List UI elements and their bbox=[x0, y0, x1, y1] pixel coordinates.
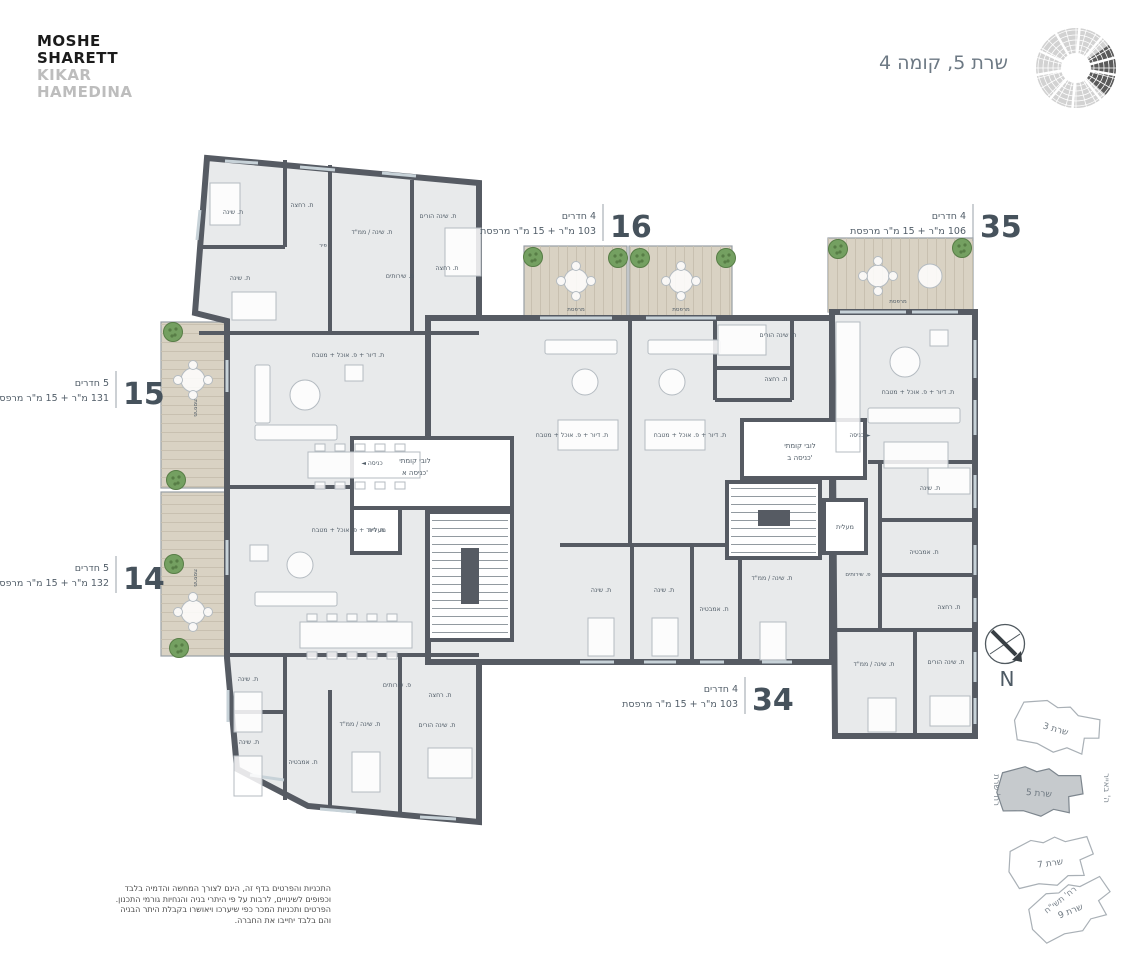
disclaimer-text: התכניות והפרטים בדף זה, הינם לצורך המחשה… bbox=[35, 884, 331, 926]
room-label: ת. שינה הורים bbox=[760, 332, 797, 339]
room-label: ת. אמבטיה bbox=[288, 759, 317, 766]
tree-icon bbox=[164, 323, 183, 342]
keyplan-building-שרת 5[interactable]: שרת 5 bbox=[995, 764, 1085, 819]
room-label: מרפסת bbox=[192, 399, 198, 417]
apartment-number: 34 bbox=[752, 683, 794, 718]
apartment-label-14[interactable]: 145 חדרים132 מ"ר + 15 מ"ר מרפסת bbox=[0, 556, 165, 597]
apartment-number: 14 bbox=[123, 562, 165, 597]
room-label: ת. רחצה bbox=[290, 202, 313, 209]
apartment-area: 103 מ"ר + 15 מ"ר מרפסת bbox=[480, 226, 596, 237]
room-label: כניסה א' bbox=[402, 469, 428, 477]
room-label: ת. שינה הורים bbox=[419, 722, 456, 729]
apartment-rooms: 4 חדרים bbox=[932, 211, 966, 222]
apartment-number: 35 bbox=[980, 210, 1022, 245]
tree-icon bbox=[170, 639, 189, 658]
tree-icon bbox=[167, 471, 186, 490]
north-label: N bbox=[1000, 667, 1015, 691]
room-label: ת. רחצה bbox=[435, 265, 458, 272]
room-label: ת. שינה bbox=[238, 676, 258, 683]
room-label: כניסה ► bbox=[849, 432, 871, 439]
compass: N bbox=[986, 625, 1025, 692]
apartment-area: 103 מ"ר + 15 מ"ר מרפסת bbox=[622, 699, 738, 710]
room-label: ת. אמבטיה bbox=[699, 606, 728, 613]
apartment-area: 106 מ"ר + 15 מ"ר מרפסת bbox=[850, 226, 966, 237]
room-label: כניסה ב' bbox=[787, 454, 812, 462]
street-label: ה' באייר bbox=[1101, 773, 1111, 803]
room-label: מרפסת bbox=[567, 307, 585, 313]
tree-icon bbox=[165, 555, 184, 574]
floorplan-page: MOSHE SHARETT KIKAR HAMEDINA שרת 5, קומה… bbox=[0, 0, 1148, 956]
room-label: ת. שינה bbox=[230, 275, 250, 282]
keyplan-building-שרת 7[interactable]: שרת 7 bbox=[1005, 832, 1097, 892]
room-label: לובי קומתי bbox=[399, 457, 431, 465]
room-label: מעלית bbox=[836, 523, 854, 531]
room-label: מרפסת bbox=[192, 569, 198, 587]
room-label: פ. שירותים bbox=[383, 682, 411, 689]
street-label: רח' שרת bbox=[991, 774, 1001, 806]
room-label: ת. דיור + פ. אוכל + מטבח bbox=[312, 352, 384, 359]
room-label: ת. רחצה bbox=[937, 604, 960, 611]
tree-icon bbox=[829, 240, 848, 259]
room-label: ת. שינה / ממ"ד bbox=[352, 229, 393, 236]
room-label: פ. שירותים bbox=[386, 273, 414, 280]
apartment-number: 16 bbox=[610, 210, 652, 245]
floor-plan: ת. שינהת. רחצהת. שינה / ממ"דת. שינה הורי… bbox=[0, 0, 1148, 956]
room-label: ת. שינה הורים bbox=[420, 213, 457, 220]
room-label: מרפסת bbox=[889, 299, 907, 305]
room-label: ת. שינה / ממ"ד bbox=[752, 575, 793, 582]
disclaimer-line: התכניות והפרטים בדף זה, הינם לצורך המחשה… bbox=[35, 884, 331, 895]
apartment-rooms: 5 חדרים bbox=[75, 563, 109, 574]
apartment-label-34[interactable]: 344 חדרים103 מ"ר + 15 מ"ר מרפסת bbox=[622, 677, 794, 718]
apartment-area: 132 מ"ר + 15 מ"ר מרפסת bbox=[0, 578, 109, 589]
apartment-area: 131 מ"ר + 15 מ"ר מרפסת bbox=[0, 393, 109, 404]
room-label: ת. שינה bbox=[223, 209, 243, 216]
apartment-number: 15 bbox=[123, 377, 165, 412]
room-label: ת. דיור + פ. אוכל + מטבח bbox=[654, 432, 726, 439]
room-label: ת. רחצה bbox=[428, 692, 451, 699]
room-label: ת. שינה / ממ"ד bbox=[854, 661, 895, 668]
disclaimer-line: וכפופים לשינויים, לרבות על פי היתרי בניה… bbox=[35, 895, 331, 906]
room-label: מעלית bbox=[368, 526, 386, 534]
room-label: ת. שינה / ממ"ד bbox=[340, 721, 381, 728]
room-label: לובי קומתי bbox=[784, 442, 816, 450]
room-label: פ. שירותים bbox=[845, 572, 871, 578]
apartment-rooms: 4 חדרים bbox=[704, 684, 738, 695]
apartment-label-16[interactable]: 164 חדרים103 מ"ר + 15 מ"ר מרפסת bbox=[480, 204, 652, 245]
room-label: מרפסת bbox=[672, 307, 690, 313]
tree-icon bbox=[953, 239, 972, 258]
room-label: ת. שינה bbox=[239, 739, 259, 746]
room-label: ת. שינה bbox=[654, 587, 674, 594]
tree-icon bbox=[524, 248, 543, 267]
room-label: ת. שינה הורים bbox=[928, 659, 965, 666]
room-label: פיר bbox=[319, 243, 327, 249]
tree-icon bbox=[717, 249, 736, 268]
room-label: ת. אמבטיה bbox=[909, 549, 938, 556]
room-label: ת. דיור + פ. אוכל + מטבח bbox=[536, 432, 608, 439]
keyplan: שרת 3שרת 5שרת 7שרת 9 bbox=[995, 693, 1120, 948]
apartment-label-15[interactable]: 155 חדרים131 מ"ר + 15 מ"ר מרפסת bbox=[0, 371, 165, 412]
tree-icon bbox=[631, 249, 650, 268]
disclaimer-line: הפרטים ותכניות המכר כפי שיערכו ויאושרו ב… bbox=[35, 905, 331, 916]
room-label: ת. שינה bbox=[920, 485, 940, 492]
room-label: ת. שינה bbox=[591, 587, 611, 594]
apartment-rooms: 4 חדרים bbox=[562, 211, 596, 222]
tree-icon bbox=[609, 249, 628, 268]
room-label: ◄ כניסה bbox=[361, 460, 382, 467]
keyplan-building-שרת 3[interactable]: שרת 3 bbox=[1009, 693, 1105, 763]
room-label: ת. רחצה bbox=[764, 376, 787, 383]
apartment-rooms: 5 חדרים bbox=[75, 378, 109, 389]
room-label: ת. דיור + פ. אוכל + מטבח bbox=[882, 389, 954, 396]
disclaimer-line: והם בלבד יחייבו את החברה. bbox=[35, 916, 331, 927]
